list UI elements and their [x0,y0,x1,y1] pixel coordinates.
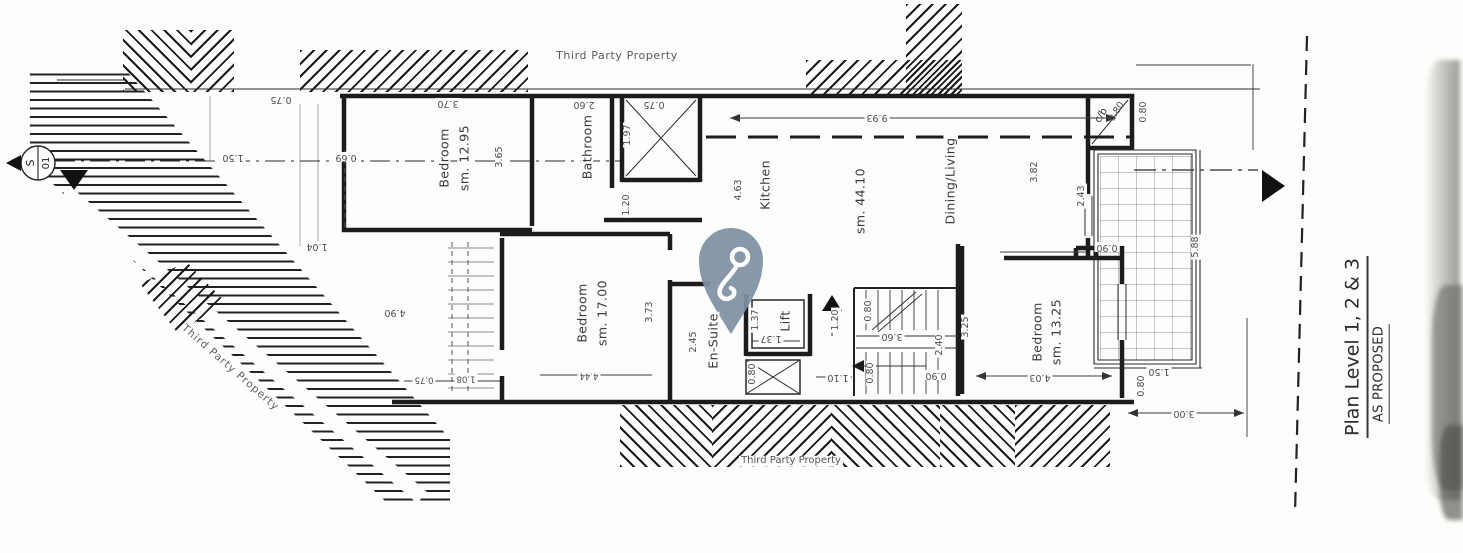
room-living-name: Dining/Living [943,136,956,227]
dim-stairs-bottom: 0.80 [866,360,876,385]
section-marker-letter: S [25,158,37,169]
room-bedroom1-name: Bedroom [437,126,450,189]
dim-bottom-right: 3.00 [1171,408,1196,418]
dim-living-depth: 3.82 [1030,159,1040,184]
dim-shaft-width: 0.75 [641,99,666,109]
dim-terrace-end-b: 1.50 [1146,366,1171,376]
section-arrow-right [1262,170,1285,202]
room-ensuite-name: En-Suite [706,311,719,370]
third-party-note-top: Third Party Property [554,50,680,62]
dim-entrance: 1.20 [831,307,841,332]
dim-kitchen-depth: 4.63 [734,177,744,202]
dim-bedroom3-width: 4.03 [1027,372,1052,382]
dim-ensuite-width: 2.45 [689,329,699,354]
dim-bedroom2-width: 4.44 [578,371,601,380]
section-marker-number: 01 [42,155,53,172]
room-living-area: sm. 44.10 [853,166,866,236]
dim-lift-w: 1.37 [758,333,783,343]
dim-top-left-offset: 0.75 [268,94,293,104]
scan-artifact [1440,425,1463,520]
room-bedroom2-name: Bedroom [575,281,588,344]
room-bedroom3-name: Bedroom [1030,300,1043,363]
dim-cb-right: 0.80 [1139,99,1149,124]
dim-lift-shaft: 0.80 [748,361,758,386]
floor-plan-drawing [0,0,1463,553]
dim-bedroom1-depth: 3.65 [495,144,505,169]
floor-plan-page: Third Party Property Third Party Propert… [0,0,1463,553]
plot-boundary-line [1295,36,1307,514]
dim-stairs-exit: 0.90 [923,370,948,380]
dim-lift-h: 1.37 [751,307,761,332]
room-bedroom1-area: sm. 12.95 [457,123,470,193]
dim-stairs-width: 2.40 [935,332,945,357]
dim-terrace-inner: 0.90 [1094,242,1119,252]
plan-status: AS PROPOSED [1373,324,1390,424]
dim-bedroom1-width: 3.70 [435,98,460,108]
dim-terrace-len: 5.88 [1191,234,1201,259]
room-bathroom-name: Bathroom [580,113,593,182]
room-kitchen-name: Kitchen [758,158,771,212]
dim-bottom-left-a: 0.75 [413,375,436,384]
dim-lobby: 1.10 [825,372,850,382]
dim-stair-void: 4.90 [382,307,407,317]
dim-wall-left: 0.69 [333,152,358,162]
dim-hall: 3.25 [961,314,971,339]
room-bedroom3-area: sm. 13.25 [1049,297,1062,367]
dim-bottom-left-b: 1.08 [455,374,478,383]
dim-bath-passage: 1.20 [622,192,632,217]
plan-title: Plan Level 1, 2 & 3 [1344,256,1369,438]
dim-bedroom1-bottom: 1.04 [304,241,329,251]
dim-section-left: 1.50 [220,152,245,162]
dim-terrace-top: 2.43 [1077,183,1087,208]
dim-stairs-top: 0.80 [864,298,874,323]
dim-terrace-end-a: 0.80 [1137,373,1147,398]
dim-shaft-height: 1.97 [623,122,633,147]
dim-bathroom-width: 2.60 [571,99,596,109]
room-lift-name: Lift [778,308,791,333]
dim-bedroom2-depth: 3.73 [645,299,655,324]
third-party-note-bottom: Third Party Property [739,456,843,467]
dim-living-length: 9.93 [864,112,889,122]
dim-stairs-mid: 3.60 [879,331,904,341]
room-bedroom2-area: sm. 17.00 [595,278,608,348]
